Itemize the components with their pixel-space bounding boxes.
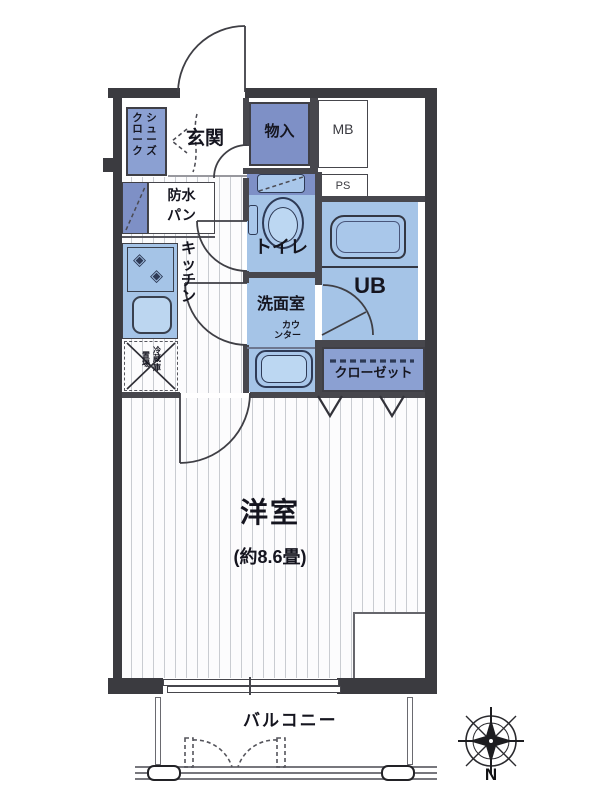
tank-diagonal-line: [259, 177, 303, 191]
western-room-label: 洋室: [215, 498, 325, 529]
hall-door-arc: [214, 145, 247, 178]
unit-bath-label: UB: [340, 274, 400, 298]
genkan-label: 玄関: [186, 129, 224, 150]
north-label: N: [480, 766, 502, 785]
balcony-door-arc: [193, 740, 232, 767]
compass-rose-icon: [458, 707, 524, 774]
floor-plan: シューズ クローク 玄関 物入 MB PS 防水 パン キッチン トイレ UB …: [0, 0, 600, 800]
balcony-door-post: [277, 738, 285, 767]
washroom-label: 洗面室: [247, 296, 315, 314]
fridge-cross-mark: [127, 343, 175, 389]
shoe-closet-label-col-right: シューズ: [145, 113, 158, 158]
pipe-space-label: PS: [318, 180, 368, 192]
closet-door-mark: [380, 396, 404, 416]
counter-label-2: ンター: [274, 331, 301, 341]
pan-diagonal-line: [126, 187, 145, 230]
linework-overlay: [0, 0, 600, 800]
western-room-door-arc: [180, 393, 250, 463]
closet-door-mark: [318, 396, 342, 416]
closet-label: クローゼット: [322, 366, 425, 380]
waterproof-pan-label-1: 防水: [148, 188, 215, 203]
stove-burner-icon: ◈: [150, 267, 163, 286]
fridge-label-col-right: 冷蔵庫: [152, 347, 162, 372]
kitchen-label: キッチン: [180, 241, 197, 305]
balcony-door-arc: [238, 740, 277, 767]
storage-label: 物入: [249, 124, 310, 141]
waterproof-pan-label-2: パン: [148, 208, 215, 223]
entrance-door-arc: [178, 26, 245, 92]
shoe-closet-label-col-left: クローク: [131, 113, 144, 158]
western-room-size-label: (約8.6畳): [205, 548, 335, 568]
toilet-label: トイレ: [247, 238, 315, 258]
stove-burner-icon: ◈: [133, 251, 146, 270]
shoe-closet-folding-door: [172, 129, 187, 153]
balcony-label: バルコニー: [243, 712, 338, 731]
meter-box-label: MB: [318, 122, 368, 137]
unit-bath-door-leaf: [322, 312, 366, 335]
toilet-door-arc: [197, 221, 247, 271]
balcony-door-post: [185, 738, 193, 767]
fridge-label-col-left: 置場: [141, 352, 151, 369]
